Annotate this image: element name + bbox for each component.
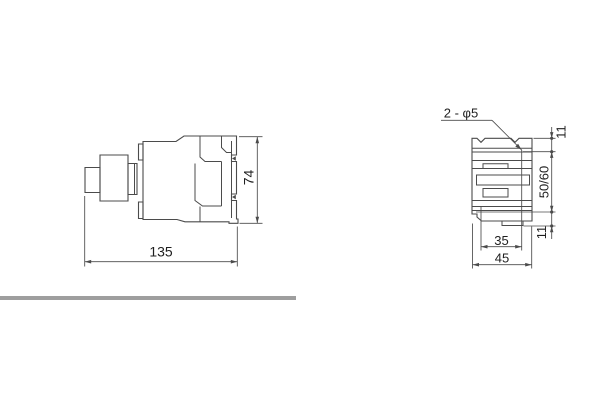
side-view-width-label: 135	[149, 244, 173, 260]
front-view-drawing: 2 - φ5	[441, 106, 569, 269]
side-view-neck	[128, 164, 137, 195]
front-view-hole-width-dimension: 35	[481, 233, 522, 249]
bottom-offset-label: 11	[534, 226, 549, 240]
side-view-lower-tab	[139, 202, 144, 219]
hole-callout-label: 2 - φ5	[444, 106, 478, 121]
front-view-small-window	[483, 189, 508, 198]
arrowhead-bottom	[256, 217, 260, 224]
side-view-upper-hook-line	[222, 136, 232, 153]
side-view-coil-block	[100, 155, 128, 201]
mounting-spacing-label: 50/60	[537, 166, 552, 199]
side-view-divider-top-line	[200, 136, 222, 162]
technical-drawing-svg: 135 74	[0, 0, 600, 400]
front-view-bottom-tab	[502, 221, 523, 226]
arrowhead-left	[473, 263, 480, 267]
front-view-width-label: 45	[495, 251, 509, 266]
side-view-height-label: 74	[240, 170, 256, 186]
top-offset-label: 11	[554, 125, 569, 139]
side-view-rail-catch-top	[232, 156, 236, 160]
arrowhead-right	[231, 260, 238, 264]
hole-callout: 2 - φ5	[441, 106, 522, 151]
arrowhead-right	[515, 245, 522, 249]
front-view-vertical-dimensions: 11 50/60 11	[534, 125, 569, 239]
side-view-width-dimension: 135	[85, 196, 238, 267]
front-view-raised-tab	[483, 164, 508, 169]
side-view-upper-tab	[139, 144, 144, 160]
side-view-height-dimension: 74	[239, 137, 263, 224]
hole-width-label: 35	[494, 233, 508, 248]
arrowhead-left	[481, 245, 488, 249]
side-view-drawing: 135 74	[85, 136, 263, 267]
side-view-rail-catch-bottom	[232, 195, 236, 199]
side-view-recess-line	[195, 164, 222, 207]
section-divider-bar	[0, 296, 296, 300]
side-view-terminal-block	[85, 168, 100, 193]
dimension-drawing-page: 135 74	[0, 0, 600, 400]
arrowhead-right	[525, 263, 532, 267]
arrowhead-top	[256, 137, 260, 144]
arrowhead-left	[85, 260, 92, 264]
